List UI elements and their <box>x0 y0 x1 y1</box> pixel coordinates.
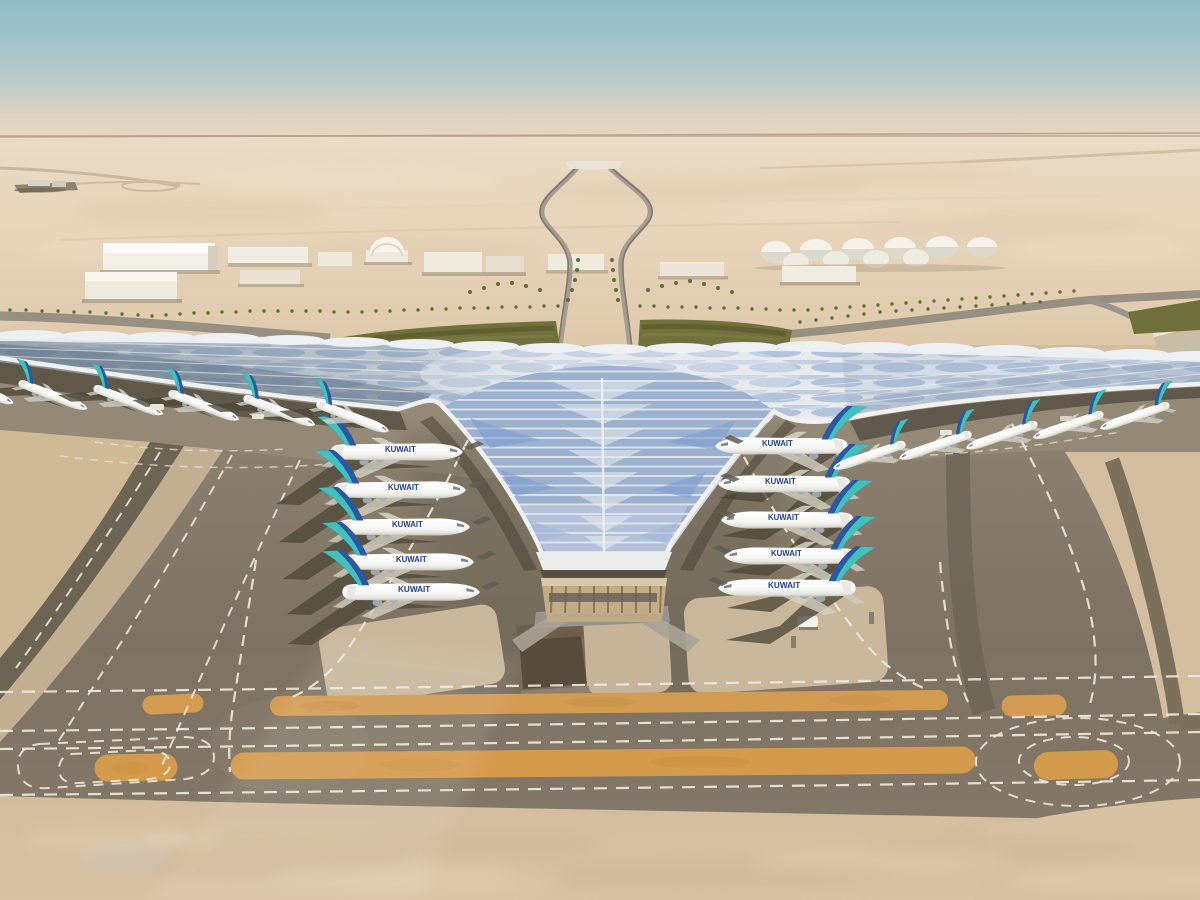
svg-text:KUWAIT: KUWAIT <box>765 477 796 486</box>
svg-text:KUWAIT: KUWAIT <box>771 549 802 558</box>
svg-text:KUWAIT: KUWAIT <box>388 483 419 492</box>
svg-text:KUWAIT: KUWAIT <box>385 445 416 454</box>
svg-text:KUWAIT: KUWAIT <box>768 581 800 590</box>
svg-text:KUWAIT: KUWAIT <box>768 513 799 522</box>
svg-text:KUWAIT: KUWAIT <box>762 439 793 448</box>
svg-text:KUWAIT: KUWAIT <box>396 555 427 564</box>
svg-text:KUWAIT: KUWAIT <box>392 520 423 529</box>
svg-text:KUWAIT: KUWAIT <box>398 585 430 594</box>
